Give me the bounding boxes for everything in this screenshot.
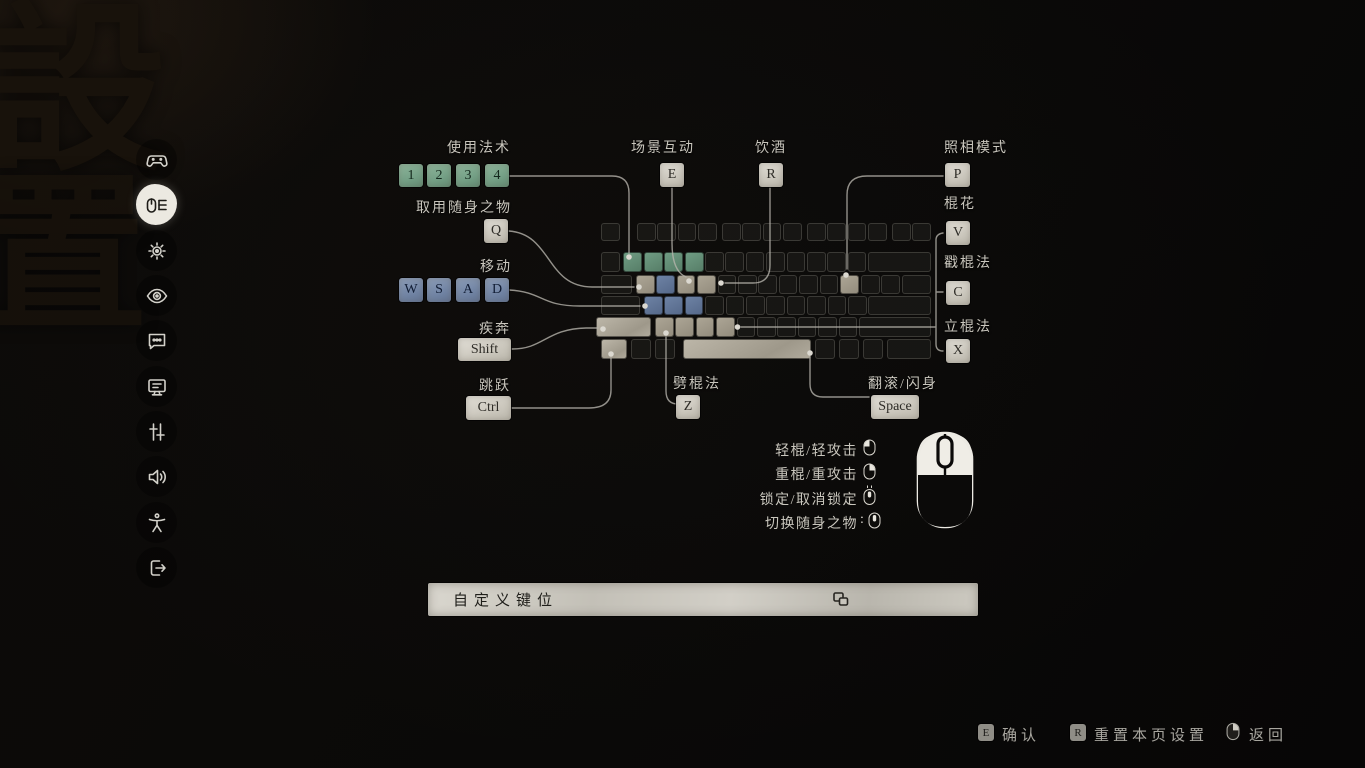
footer-back-label: 返回	[1249, 724, 1287, 745]
keyboard-key-ghost	[718, 275, 737, 294]
sidebar-item-subtitles[interactable]	[136, 320, 177, 361]
key-3: 3	[456, 164, 480, 187]
keyboard-key-ghost	[746, 296, 765, 315]
keyboard-key-ghost	[722, 223, 741, 241]
footer-confirm-key[interactable]: E	[978, 724, 994, 741]
keyboard-key-ghost	[807, 296, 826, 315]
keyboard-key-highlight	[683, 339, 811, 359]
binding-label-smash: 劈棍法	[627, 373, 767, 393]
binding-label-item: 取用随身之物	[311, 197, 512, 217]
binding-label-spells: 使用法术	[311, 137, 511, 157]
eye-icon	[145, 284, 169, 308]
custom-keybind-label: 自定义键位	[453, 589, 558, 610]
binding-label-photo: 照相模式	[944, 137, 1008, 157]
keyboard-key-ghost	[798, 317, 817, 337]
binding-label-dodge: 翻滚/闪身	[833, 373, 973, 393]
accessibility-icon	[146, 512, 168, 534]
keyboard-key-ghost	[725, 252, 744, 272]
key-1: 1	[399, 164, 423, 187]
sidebar-item-gamepad[interactable]	[136, 139, 177, 180]
keyboard-key-ghost	[848, 296, 867, 315]
keyboard-key-ghost	[726, 296, 745, 315]
subtitles-chat-icon	[146, 330, 168, 352]
key-d: D	[485, 278, 509, 302]
gamepad-icon	[145, 148, 169, 172]
keyboard-key-highlight	[664, 296, 683, 315]
mouse-binding-heavy-attack: 重棍/重攻击	[638, 464, 858, 484]
key-a: A	[456, 278, 480, 302]
key-x: X	[946, 339, 970, 363]
keyboard-key-ghost	[601, 252, 620, 272]
keyboard-key-ghost	[881, 275, 900, 294]
footer-reset-key[interactable]: R	[1070, 724, 1086, 741]
keyboard-key-highlight	[623, 252, 642, 272]
keyboard-key-ghost	[657, 223, 676, 241]
keyboard-key-highlight	[697, 275, 716, 294]
keyboard-key-ghost	[746, 252, 765, 272]
key-s: S	[427, 278, 451, 302]
keyboard-key-ghost	[863, 339, 883, 359]
keyboard-key-ghost	[868, 252, 931, 272]
speaker-icon	[145, 465, 169, 489]
keyboard-key-ghost	[738, 275, 757, 294]
keyboard-key-ghost	[601, 296, 640, 315]
keyboard-key-highlight	[655, 317, 674, 337]
keyboard-key-ghost	[631, 339, 651, 359]
keyboard-key-highlight	[685, 296, 704, 315]
keyboard-key-ghost	[705, 252, 724, 272]
keyboard-key-ghost	[848, 223, 867, 241]
keyboard-key-ghost	[807, 252, 826, 272]
calligraphy-zhi: 置	[0, 172, 148, 342]
keyboard-key-ghost	[698, 223, 717, 241]
sidebar-item-display[interactable]	[136, 275, 177, 316]
key-v: V	[946, 221, 970, 245]
custom-keybind-button[interactable]: 自定义键位	[428, 583, 978, 616]
sidebar-item-keyboard-mouse[interactable]	[136, 184, 177, 225]
overlap-windows-icon	[832, 591, 850, 608]
sidebar-item-exit[interactable]	[136, 547, 177, 588]
keyboard-key-ghost	[766, 296, 785, 315]
sidebar-item-monitor[interactable]	[136, 366, 177, 407]
keyboard-key-highlight	[677, 275, 696, 294]
keyboard-key-ghost	[815, 339, 835, 359]
mouse-scroll-icon	[868, 512, 881, 529]
keyboard-key-ghost	[807, 223, 826, 241]
key-q: Q	[484, 219, 508, 243]
sidebar-item-settings[interactable]	[136, 230, 177, 271]
keyboard-key-ghost	[779, 275, 798, 294]
keyboard-key-ghost	[868, 296, 931, 315]
keyboard-key-ghost	[757, 317, 776, 337]
key-4: 4	[485, 164, 509, 187]
keyboard-key-ghost	[868, 223, 887, 241]
keyboard-key-ghost	[859, 317, 931, 337]
keyboard-key-ghost	[820, 275, 839, 294]
key-shift: Shift	[458, 338, 511, 361]
key-r: R	[759, 163, 783, 187]
keyboard-key-ghost	[861, 275, 880, 294]
keyboard-mouse-icon	[144, 193, 170, 217]
scroll-colon: :	[860, 512, 864, 528]
binding-label-sprint: 疾奔	[311, 318, 511, 338]
sidebar-item-accessibility[interactable]	[136, 502, 177, 543]
sidebar-item-audio[interactable]	[136, 456, 177, 497]
settings-keyboard-page: 設 置	[0, 0, 1365, 768]
keyboard-key-ghost	[637, 223, 656, 241]
binding-label-jump: 跳跃	[311, 375, 511, 395]
mouse-binding-lock-on: 锁定/取消锁定	[638, 489, 858, 509]
key-e: E	[660, 163, 684, 187]
binding-label-move: 移动	[311, 256, 512, 276]
key-w: W	[399, 278, 423, 302]
keyboard-key-ghost	[839, 339, 859, 359]
key-z: Z	[676, 395, 700, 419]
keyboard-key-highlight	[696, 317, 715, 337]
mouse-binding-light-attack: 轻棍/轻攻击	[638, 440, 858, 460]
binding-label-flourish: 棍花	[944, 193, 976, 213]
gear-icon	[146, 240, 168, 262]
keyboard-key-ghost	[705, 296, 724, 315]
keyboard-key-ghost	[655, 339, 675, 359]
keyboard-key-ghost	[601, 275, 632, 294]
keyboard-key-ghost	[787, 296, 806, 315]
keyboard-key-ghost	[818, 317, 837, 337]
keyboard-key-ghost	[742, 223, 761, 241]
keyboard-key-highlight	[685, 252, 704, 272]
keyboard-key-ghost	[827, 252, 846, 272]
footer-reset-label: 重置本页设置	[1094, 724, 1208, 745]
keyboard-key-highlight	[644, 252, 663, 272]
binding-label-pillar: 立棍法	[944, 316, 992, 336]
keyboard-key-ghost	[777, 317, 796, 337]
keyboard-key-highlight	[664, 252, 683, 272]
keyboard-key-ghost	[601, 223, 620, 241]
keyboard-key-highlight	[840, 275, 859, 294]
mouse-middle-click-icon	[863, 485, 876, 506]
exit-icon	[146, 557, 168, 579]
footer-back-mouse-icon[interactable]	[1226, 722, 1240, 741]
keyboard-key-ghost	[787, 252, 806, 272]
keyboard-key-ghost	[783, 223, 802, 241]
keyboard-key-ghost	[902, 275, 931, 294]
mouse-binding-switch-item: 切换随身之物	[638, 513, 858, 533]
keyboard-key-ghost	[828, 296, 847, 315]
key-2: 2	[427, 164, 451, 187]
mouse-illustration	[914, 428, 976, 531]
binding-label-drink: 饮酒	[701, 137, 841, 157]
monitor-icon	[146, 376, 168, 398]
keyboard-key-ghost	[912, 223, 931, 241]
keyboard-key-ghost	[766, 252, 785, 272]
keyboard-key-ghost	[887, 339, 931, 359]
footer-confirm-label: 确认	[1002, 724, 1040, 745]
keyboard-key-ghost	[737, 317, 756, 337]
keyboard-key-ghost	[763, 223, 782, 241]
binding-label-thrust: 戳棍法	[944, 252, 992, 272]
keyboard-key-ghost	[892, 223, 911, 241]
keyboard-key-highlight	[644, 296, 663, 315]
key-p: P	[945, 163, 970, 187]
keyboard-key-ghost	[827, 223, 846, 241]
sliders-icon	[146, 421, 168, 443]
mouse-right-click-icon	[863, 463, 876, 480]
keyboard-key-ghost	[799, 275, 818, 294]
keyboard-key-ghost	[758, 275, 777, 294]
sidebar-item-adjustments[interactable]	[136, 411, 177, 452]
key-ctrl: Ctrl	[466, 396, 511, 420]
keyboard-key-ghost	[848, 252, 867, 272]
mouse-left-click-icon	[863, 439, 876, 456]
keyboard-key-ghost	[839, 317, 858, 337]
keyboard-key-highlight	[596, 317, 651, 337]
keyboard-key-ghost	[678, 223, 697, 241]
key-space: Space	[871, 395, 919, 419]
keyboard-key-highlight	[636, 275, 655, 294]
keyboard-key-highlight	[601, 339, 627, 359]
keyboard-key-highlight	[675, 317, 694, 337]
key-c: C	[946, 281, 970, 305]
keyboard-key-highlight	[716, 317, 735, 337]
keyboard-key-highlight	[656, 275, 675, 294]
